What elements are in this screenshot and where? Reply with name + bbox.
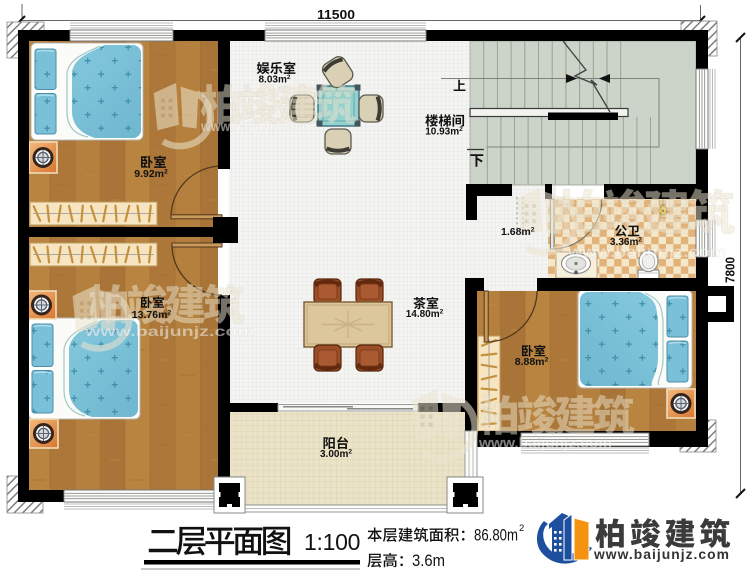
svg-text:14.80m2: 14.80m2 (406, 309, 444, 321)
svg-text:8.03m2: 8.03m2 (259, 74, 291, 86)
svg-text:2: 2 (519, 523, 524, 534)
svg-text:www.baijunjz.com: www.baijunjz.com (567, 244, 726, 261)
svg-text:1:100: 1:100 (304, 529, 360, 555)
svg-text:11500: 11500 (317, 7, 355, 22)
svg-text:www.baijunjz.com: www.baijunjz.com (478, 435, 612, 452)
svg-text:1.68m2: 1.68m2 (501, 226, 535, 238)
svg-text:www.baijunjz.com: www.baijunjz.com (84, 323, 255, 339)
svg-text:9.92m2: 9.92m2 (134, 168, 168, 180)
svg-text:10.93m2: 10.93m2 (425, 126, 463, 138)
svg-text:3.00m2: 3.00m2 (320, 449, 352, 461)
svg-text:3.6m: 3.6m (412, 551, 445, 570)
svg-text:86.80m: 86.80m (474, 526, 518, 545)
svg-text:8.88m2: 8.88m2 (515, 356, 549, 368)
svg-text:www.baijunjz.com: www.baijunjz.com (200, 119, 309, 134)
svg-text:www.baijunjz.com: www.baijunjz.com (593, 547, 730, 562)
svg-text:13.76m2: 13.76m2 (132, 309, 172, 321)
svg-text:3.36m2: 3.36m2 (610, 237, 642, 249)
